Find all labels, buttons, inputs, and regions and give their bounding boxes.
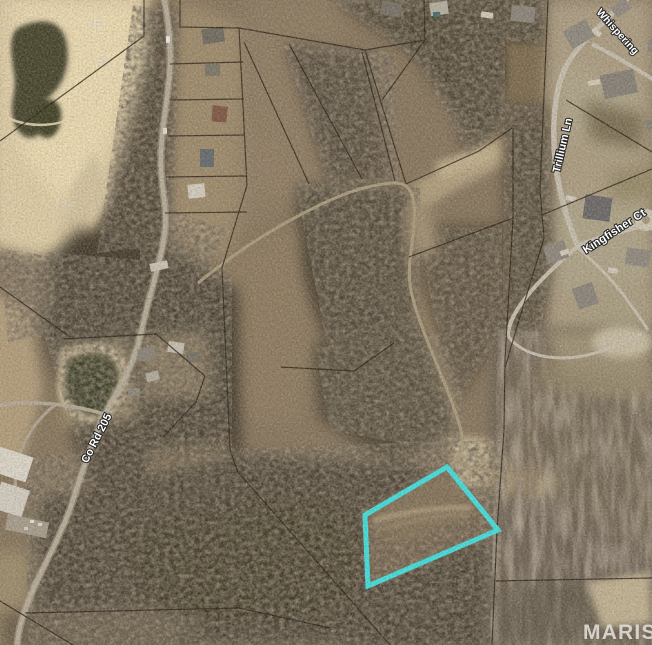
svg-text:MARIS: MARIS bbox=[583, 621, 652, 644]
